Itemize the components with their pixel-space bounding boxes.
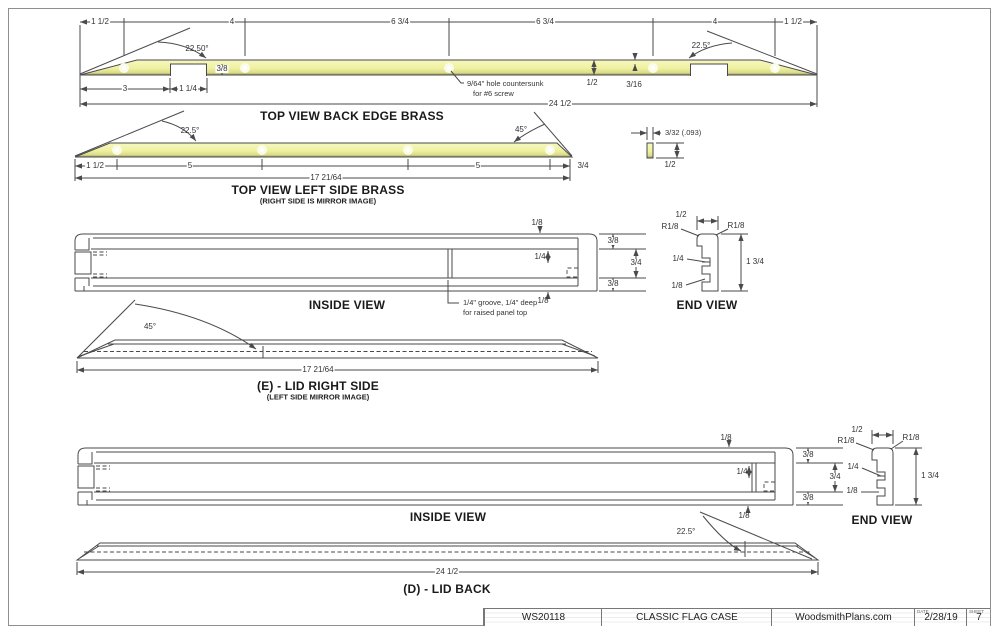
notch-right [691,64,728,77]
view-title: TOP VIEW LEFT SIDE BRASS [231,184,404,196]
title-block-cell-code: WS20118 [484,609,602,626]
dim-label: 4 [229,18,235,26]
dim-label: 3/8 [801,494,814,502]
notch-left [171,64,207,77]
brass-strip [75,143,572,157]
dim-label: 1/8 [530,219,543,227]
dim-label: 3 [122,85,128,93]
drawing-sheet: 1 1/2 4 6 3/4 6 3/4 4 1 1/2 22.50° 22.5°… [0,0,1000,636]
radius-label: R1/8 [902,434,921,442]
angle-label: 22.50° [184,45,209,53]
dim-label: 17 21/64 [309,174,342,182]
view-title: TOP VIEW BACK EDGE BRASS [260,110,444,122]
dim-label: 1/8 [670,282,683,290]
dim-label: 1/2 [663,161,676,169]
dim-label: 1 3/4 [745,258,765,266]
hole-note: 9/64" hole countersunk [466,80,544,88]
view-title: END VIEW [677,299,738,311]
radius-label: R1/8 [727,222,746,230]
groove-note: 1/4" groove, 1/4" deep [462,299,538,307]
view-subtitle: (LEFT SIDE MIRROR IMAGE) [267,393,370,401]
dim-label: 1 1/2 [90,18,110,26]
dim-label: 3/8 [606,280,619,288]
dim-label: 3/4 [576,162,589,170]
dim-label: 1/8 [536,297,549,305]
view-title: INSIDE VIEW [410,511,486,523]
title-block-cell-sheet: SHEET 7 [966,609,991,626]
publisher: WoodsmithPlans.com [795,613,892,623]
plan-number: WS20118 [522,613,565,623]
groove-note: for raised panel top [462,309,528,317]
dim-label: 3/4 [629,259,642,267]
date-value: 2/28/19 [924,613,957,623]
dim-label: 3/16 [625,81,643,89]
title-block-cell-date: DATE 2/28/19 [914,609,967,626]
plan-title: CLASSIC FLAG CASE [636,613,738,623]
back-edge-brass-drawing [80,18,817,107]
dim-label: 1/4 [533,253,546,261]
dim-label: 1/2 [674,211,687,219]
dim-label: 3/8 [215,65,228,73]
dim-label: 5 [187,162,193,170]
view-title: INSIDE VIEW [309,299,385,311]
dim-label: 1 1/2 [85,162,105,170]
dim-label: 3/4 [828,473,841,481]
dim-label: 1 1/2 [783,18,803,26]
angle-label: 22.5° [180,127,201,135]
view-title: (E) - LID RIGHT SIDE [257,380,379,392]
radius-label: R1/8 [837,437,856,445]
dim-label: 1 1/4 [178,85,198,93]
angle-label: 22.5° [676,528,697,536]
dim-label: 4 [712,18,718,26]
view-subtitle: (RIGHT SIDE IS MIRROR IMAGE) [260,197,376,205]
profile-outline [78,448,793,505]
dim-label: 3/8 [801,451,814,459]
dim-label: 1 3/4 [920,472,940,480]
profile-outline [75,234,597,291]
sheet-label: SHEET [969,610,984,615]
dim-label: 1/2 [850,426,863,434]
dim-label: 1/8 [845,487,858,495]
dim-label: 1/4 [671,255,684,263]
dim-label: 1/4 [735,468,748,476]
dim-label: 24 1/2 [548,100,572,108]
angle-label: 22.5° [691,42,712,50]
title-block: WS20118 CLASSIC FLAG CASE WoodsmithPlans… [483,608,990,626]
dim-label: 6 3/4 [535,18,555,26]
dim-label: 17 21/64 [301,366,334,374]
dim-label: 6 3/4 [390,18,410,26]
dim-label: 1/8 [737,512,750,520]
lid-side-inside-view-drawing [75,226,646,303]
brass-cross-section [647,143,653,158]
view-title: (D) - LID BACK [403,583,490,595]
dim-label: 3/32 (.093) [664,129,702,137]
hole-note: for #6 screw [472,90,515,98]
bevel-profile [77,340,598,358]
angle-label: 45° [514,126,528,134]
dim-label: 1/4 [846,463,859,471]
dim-label: 1/2 [585,79,598,87]
dim-label: 5 [475,162,481,170]
lid-back-inside-view-drawing [78,441,843,512]
date-label: DATE [917,610,929,615]
radius-label: R1/8 [661,223,680,231]
dim-label: 24 1/2 [435,568,459,576]
angle-label: 45° [143,323,157,331]
dim-label: 3/8 [606,237,619,245]
view-title: END VIEW [852,514,913,526]
title-block-cell-name: CLASSIC FLAG CASE [601,609,772,626]
title-block-cell-site: WoodsmithPlans.com [771,609,915,626]
dim-label: 1/8 [719,434,732,442]
